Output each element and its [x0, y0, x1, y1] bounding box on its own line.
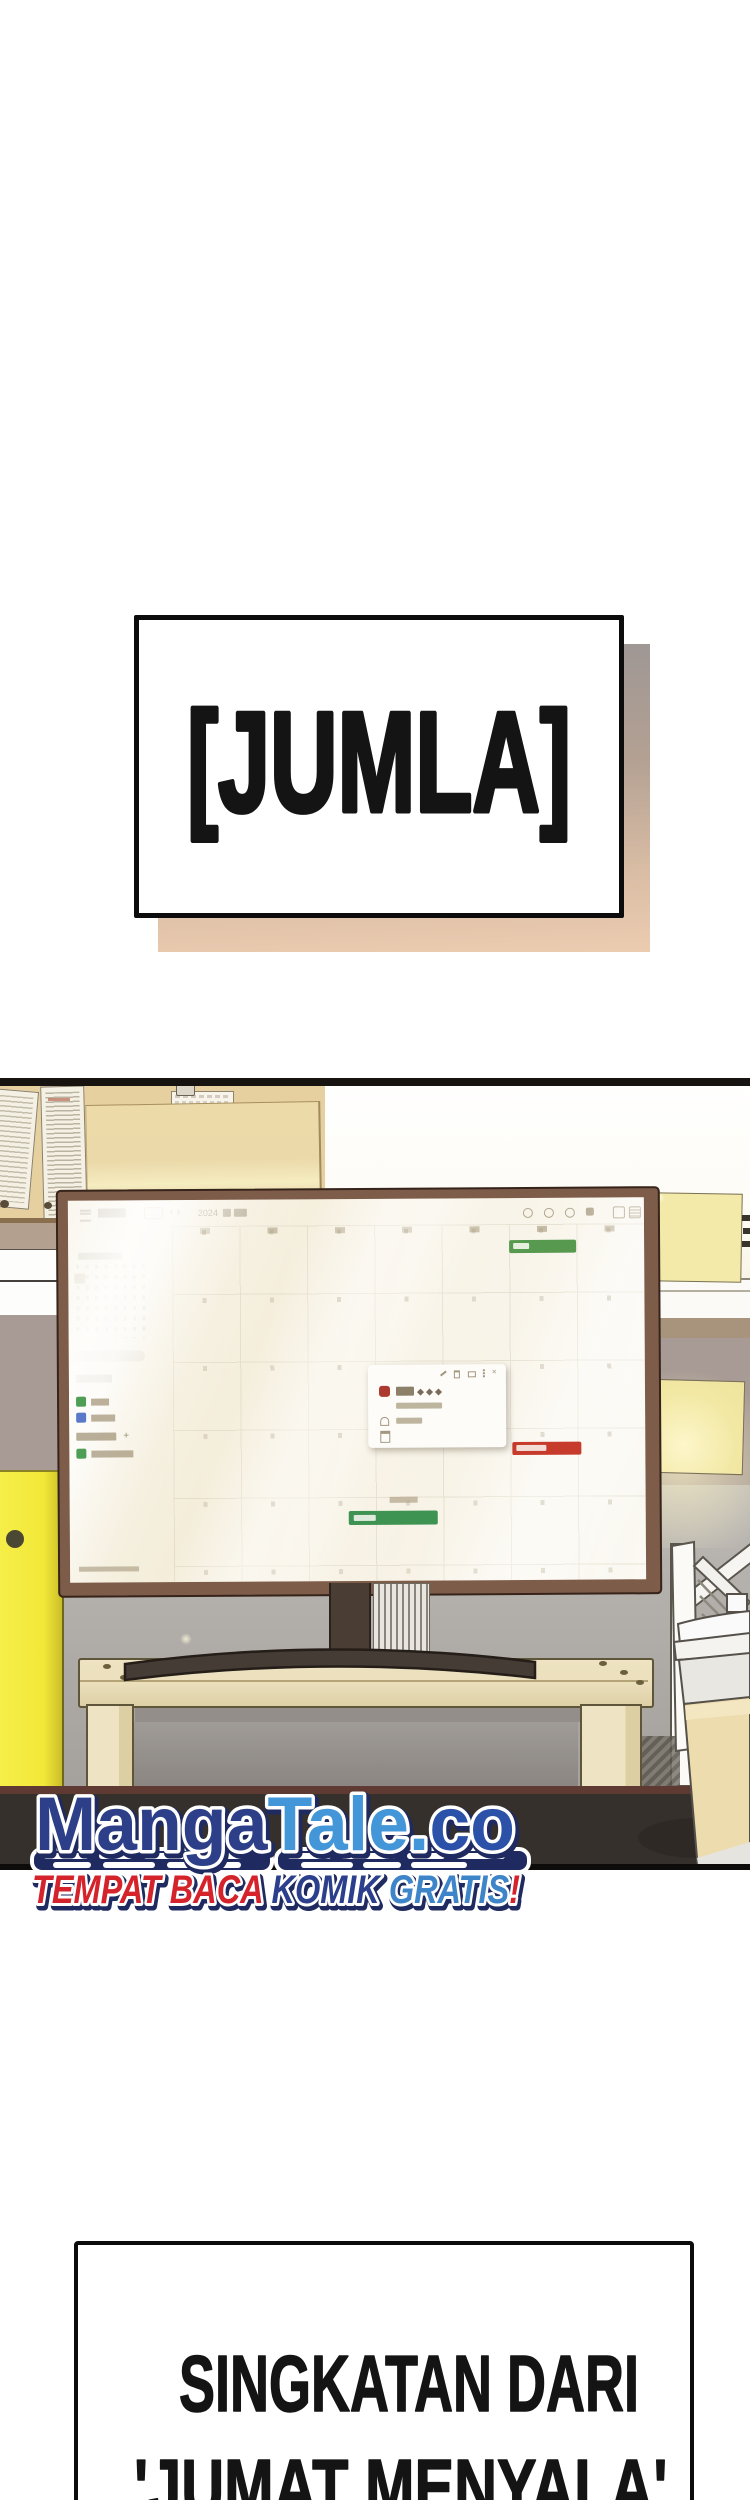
svg-text:[JUMLA]: [JUMLA]	[187, 683, 571, 842]
svg-text:SINGKATAN DARI: SINGKATAN DARI	[179, 2339, 639, 2428]
svg-text:TEMPAT BACA KOMIK GRATIS!: TEMPAT BACA KOMIK GRATIS!	[32, 1868, 520, 1912]
svg-text:'JUMAT MENYALA',: 'JUMAT MENYALA',	[134, 2443, 684, 2500]
svg-text:MangaTale.co: MangaTale.co	[35, 1782, 515, 1867]
